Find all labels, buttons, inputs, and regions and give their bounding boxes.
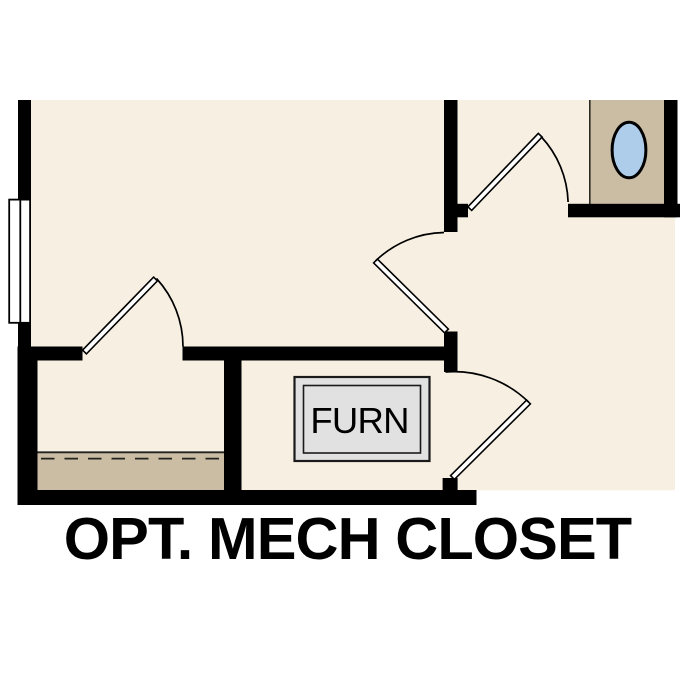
svg-text:FURN: FURN — [310, 400, 408, 441]
svg-text:OPT. MECH CLOSET: OPT. MECH CLOSET — [64, 505, 632, 572]
